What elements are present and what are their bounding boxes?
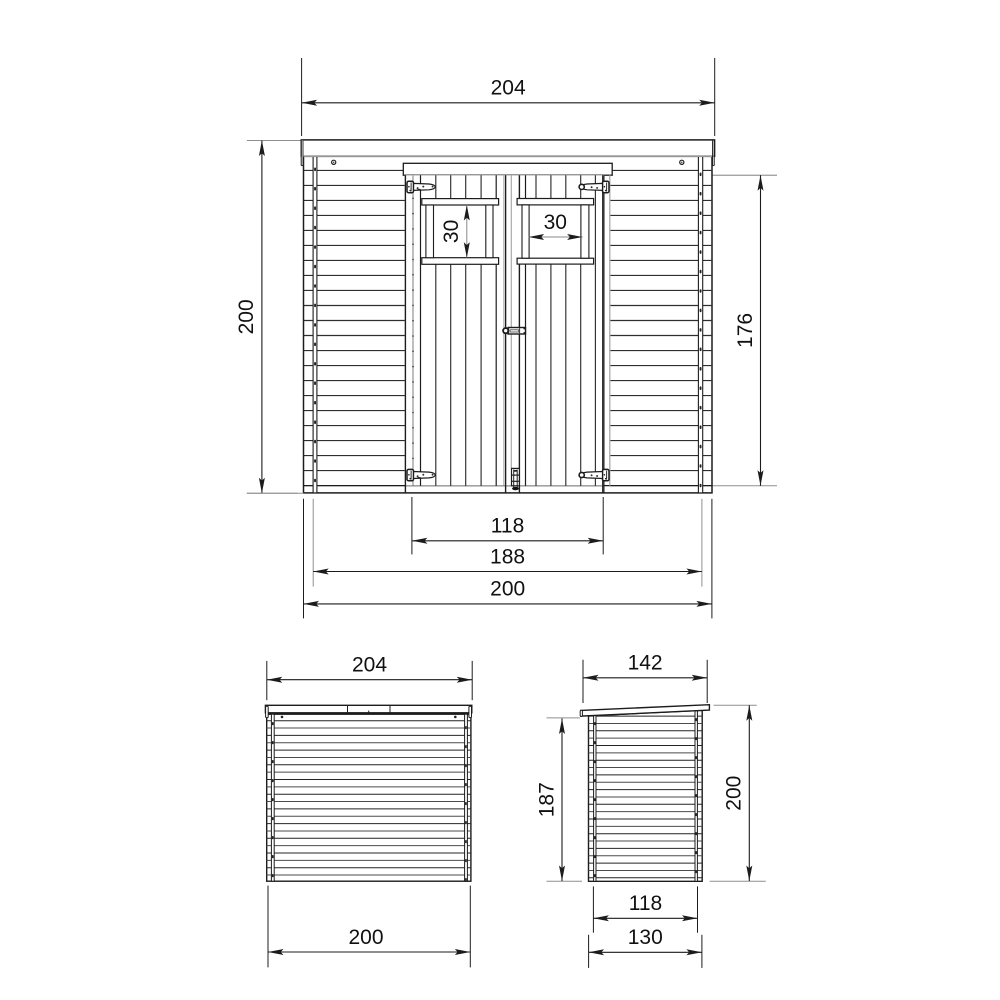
svg-text:188: 188 (490, 545, 525, 568)
svg-text:200: 200 (235, 299, 258, 334)
svg-text:187: 187 (535, 782, 558, 817)
svg-text:130: 130 (628, 926, 663, 949)
svg-text:176: 176 (734, 313, 757, 348)
svg-text:118: 118 (629, 892, 662, 915)
svg-text:118: 118 (491, 515, 524, 538)
svg-text:30: 30 (544, 211, 567, 234)
svg-text:30: 30 (440, 220, 463, 243)
svg-text:200: 200 (490, 578, 525, 601)
svg-text:204: 204 (491, 77, 526, 100)
svg-text:200: 200 (723, 776, 746, 811)
svg-text:142: 142 (628, 652, 663, 675)
svg-text:204: 204 (352, 654, 387, 677)
svg-text:200: 200 (348, 926, 383, 949)
